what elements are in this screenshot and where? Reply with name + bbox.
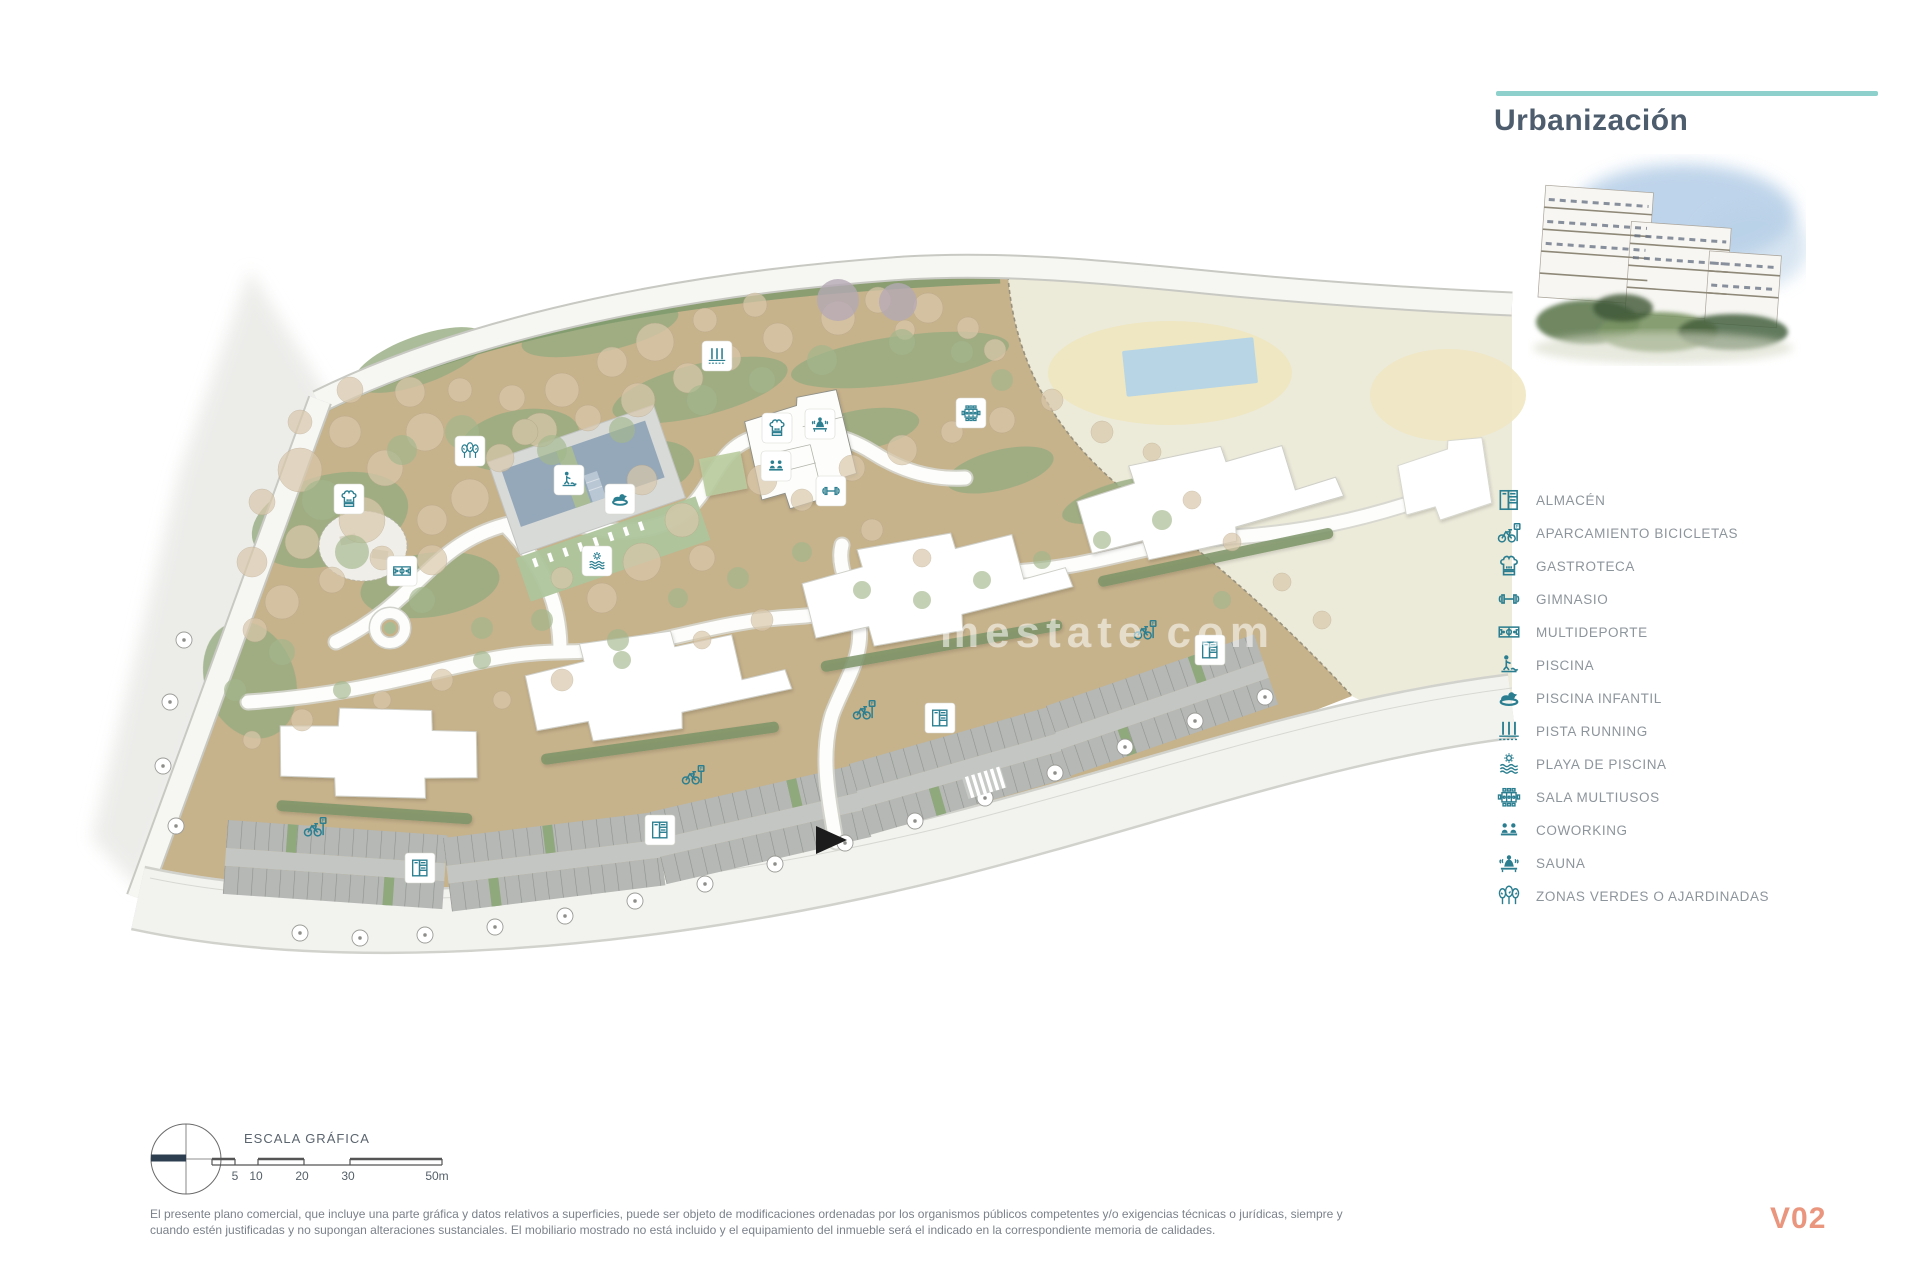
piscina-infantil-icon (1496, 685, 1522, 711)
disclaimer-line-2: cuando estén justificadas y no supongan … (150, 1222, 1420, 1238)
legend-item-pista-running: PISTA RUNNING (1496, 718, 1896, 744)
amenities-legend: ALMACÉN APARCAMIENTO BICICLETAS GASTROTE… (1496, 487, 1896, 909)
legend-label: PISCINA INFANTIL (1536, 691, 1662, 706)
legend-label: SALA MULTIUSOS (1536, 790, 1660, 805)
pista-running-icon (1496, 718, 1522, 744)
legend-item-playa-piscina: PLAYA DE PISCINA (1496, 751, 1896, 777)
legend-item-gastroteca: GASTROTECA (1496, 553, 1896, 579)
zonas-verdes-icon (1496, 883, 1522, 909)
legend-item-zonas-verdes: ZONAS VERDES O AJARDINADAS (1496, 883, 1896, 909)
scale-tick-50: 50m (425, 1169, 448, 1183)
plan-gimnasio-icon (816, 476, 846, 506)
legend-label: MULTIDEPORTE (1536, 625, 1648, 640)
legend-label: PISCINA (1536, 658, 1594, 673)
scale-tick-30: 30 (341, 1169, 354, 1183)
legend-item-sauna: SAUNA (1496, 850, 1896, 876)
plan-pista-running-icon (702, 341, 732, 371)
disclaimer-line-1: El presente plano comercial, que incluye… (150, 1206, 1420, 1222)
legend-item-multideporte: MULTIDEPORTE (1496, 619, 1896, 645)
legend-item-gimnasio: GIMNASIO (1496, 586, 1896, 612)
almacen-icon (1496, 487, 1522, 513)
plan-gastroteca-club-icon (762, 413, 792, 443)
legend-item-bike-parking: APARCAMIENTO BICICLETAS (1496, 520, 1896, 546)
piscina-icon (1496, 652, 1522, 678)
sauna-icon (1496, 850, 1522, 876)
gastroteca-icon (1496, 553, 1522, 579)
sala-multiusos-icon (1496, 784, 1522, 810)
north-compass-icon (151, 1124, 221, 1194)
legend-label: PLAYA DE PISCINA (1536, 757, 1667, 772)
plan-piscina-icon (554, 465, 584, 495)
multideporte-icon (1496, 619, 1522, 645)
plan-almacen-icon-2 (645, 815, 675, 845)
scale-bar (212, 1159, 442, 1165)
playa-piscina-icon (1496, 751, 1522, 777)
legend-label: GASTROTECA (1536, 559, 1635, 574)
legend-label: ALMACÉN (1536, 493, 1605, 508)
plan-almacen-icon-4 (1195, 635, 1225, 665)
building-rendering-image (1528, 152, 1806, 366)
scale-tick-10: 10 (249, 1169, 262, 1183)
scale-title: ESCALA GRÁFICA (244, 1131, 370, 1146)
plan-multideporte-icon (387, 556, 417, 586)
legend-item-sala-multiusos: SALA MULTIUSOS (1496, 784, 1896, 810)
legend-label: SAUNA (1536, 856, 1586, 871)
legend-item-coworking: COWORKING (1496, 817, 1896, 843)
plan-almacen-icon-1 (405, 853, 435, 883)
plan-gastroteca-icon (334, 484, 364, 514)
plan-sauna-icon (805, 409, 835, 439)
legend-label: PISTA RUNNING (1536, 724, 1648, 739)
legend-label: COWORKING (1536, 823, 1628, 838)
legend-item-piscina-infantil: PISCINA INFANTIL (1496, 685, 1896, 711)
accent-line (1496, 91, 1878, 96)
plan-zonas-verdes-icon (455, 436, 485, 466)
gimnasio-icon (1496, 586, 1522, 612)
scale-tick-5: 5 (232, 1169, 239, 1183)
scale-tick-20: 20 (295, 1169, 308, 1183)
plan-sala-multiusos-icon (956, 398, 986, 428)
disclaimer: El presente plano comercial, que incluye… (150, 1206, 1420, 1238)
bike-parking-icon (1496, 520, 1522, 546)
plan-piscina-infantil-icon (605, 484, 635, 514)
legend-label: APARCAMIENTO BICICLETAS (1536, 526, 1738, 541)
plan-playa-piscina-icon (582, 546, 612, 576)
version-label: V02 (1770, 1202, 1826, 1236)
page-title: Urbanización (1494, 104, 1688, 138)
legend-label: GIMNASIO (1536, 592, 1608, 607)
scale-area: ESCALA GRÁFICA 5 10 20 30 50m (150, 1118, 480, 1213)
plan-almacen-icon-3 (925, 703, 955, 733)
coworking-icon (1496, 817, 1522, 843)
plan-coworking-icon (761, 451, 791, 481)
legend-item-almacen: ALMACÉN (1496, 487, 1896, 513)
legend-label: ZONAS VERDES O AJARDINADAS (1536, 889, 1769, 904)
brochure-page: P (0, 0, 1920, 1280)
legend-item-piscina: PISCINA (1496, 652, 1896, 678)
